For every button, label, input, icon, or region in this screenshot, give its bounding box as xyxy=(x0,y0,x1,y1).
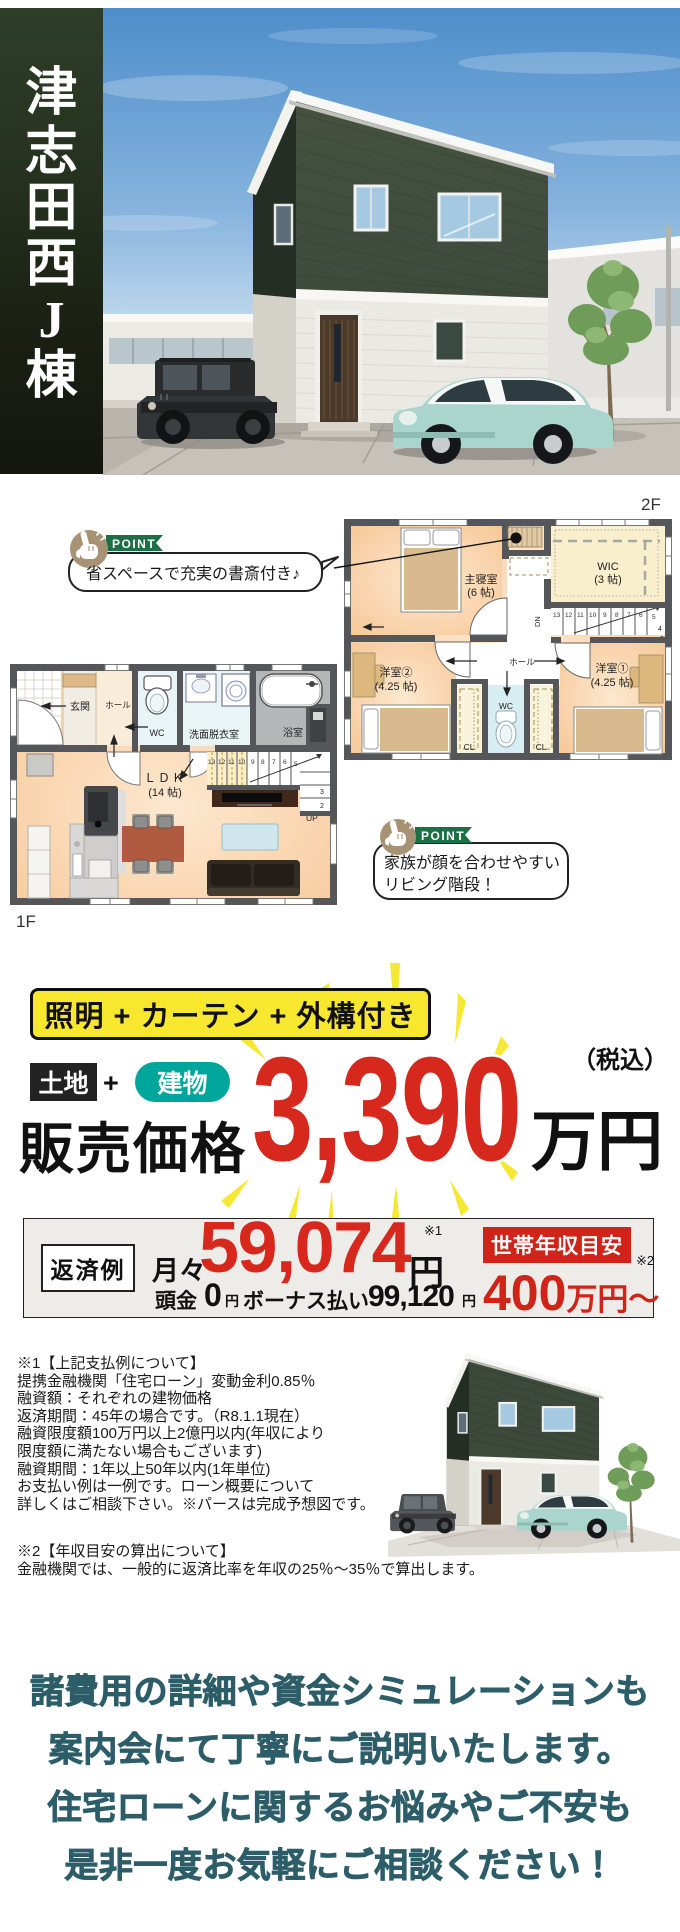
svg-text:8: 8 xyxy=(615,612,619,619)
svg-text:省スペースで充実の書斎付き♪: 省スペースで充実の書斎付き♪ xyxy=(86,565,300,583)
svg-text:POINT: POINT xyxy=(421,829,465,843)
svg-text:CL: CL xyxy=(536,742,547,752)
svg-text:洋室①: 洋室① xyxy=(596,661,629,675)
svg-text:9: 9 xyxy=(603,612,607,619)
svg-text:12: 12 xyxy=(218,759,226,766)
svg-text:3: 3 xyxy=(320,789,324,796)
svg-text:WIC: WIC xyxy=(597,561,618,573)
svg-text:玄関: 玄関 xyxy=(70,700,90,713)
svg-text:ホール: ホール xyxy=(509,657,535,667)
svg-text:12: 12 xyxy=(565,612,573,619)
svg-text:洋室②: 洋室② xyxy=(380,665,413,679)
svg-text:CL: CL xyxy=(464,742,475,752)
svg-text:(4.25 帖): (4.25 帖) xyxy=(591,676,634,689)
svg-text:11: 11 xyxy=(228,759,235,766)
svg-text:(14 帖): (14 帖) xyxy=(148,786,182,799)
svg-text:WC: WC xyxy=(150,728,165,738)
svg-text:5: 5 xyxy=(652,614,656,621)
svg-text:10: 10 xyxy=(589,612,597,619)
svg-text:4: 4 xyxy=(658,626,662,633)
svg-text:浴室: 浴室 xyxy=(283,726,303,739)
svg-text:(4.25 帖): (4.25 帖) xyxy=(375,680,418,693)
svg-text:10: 10 xyxy=(238,759,246,766)
svg-text:(6 帖): (6 帖) xyxy=(467,586,495,599)
svg-text:ホール: ホール xyxy=(105,700,131,710)
svg-text:9: 9 xyxy=(251,759,255,766)
svg-text:7: 7 xyxy=(272,759,276,766)
svg-text:2: 2 xyxy=(320,803,324,810)
svg-text:(3 帖): (3 帖) xyxy=(594,573,622,586)
svg-text:13: 13 xyxy=(553,612,561,619)
svg-text:DN: DN xyxy=(533,616,542,627)
svg-text:11: 11 xyxy=(577,612,584,619)
svg-text:WC: WC xyxy=(499,701,513,711)
svg-text:リビング階段！: リビング階段！ xyxy=(384,876,496,894)
svg-text:13: 13 xyxy=(208,759,216,766)
svg-text:6: 6 xyxy=(283,759,287,766)
svg-text:家族が顔を合わせやすい: 家族が顔を合わせやすい xyxy=(384,854,560,872)
svg-text:POINT: POINT xyxy=(112,537,156,551)
svg-text:8: 8 xyxy=(261,759,265,766)
svg-text:主寝室: 主寝室 xyxy=(465,573,498,586)
svg-text:洗面脱衣室: 洗面脱衣室 xyxy=(189,728,239,741)
